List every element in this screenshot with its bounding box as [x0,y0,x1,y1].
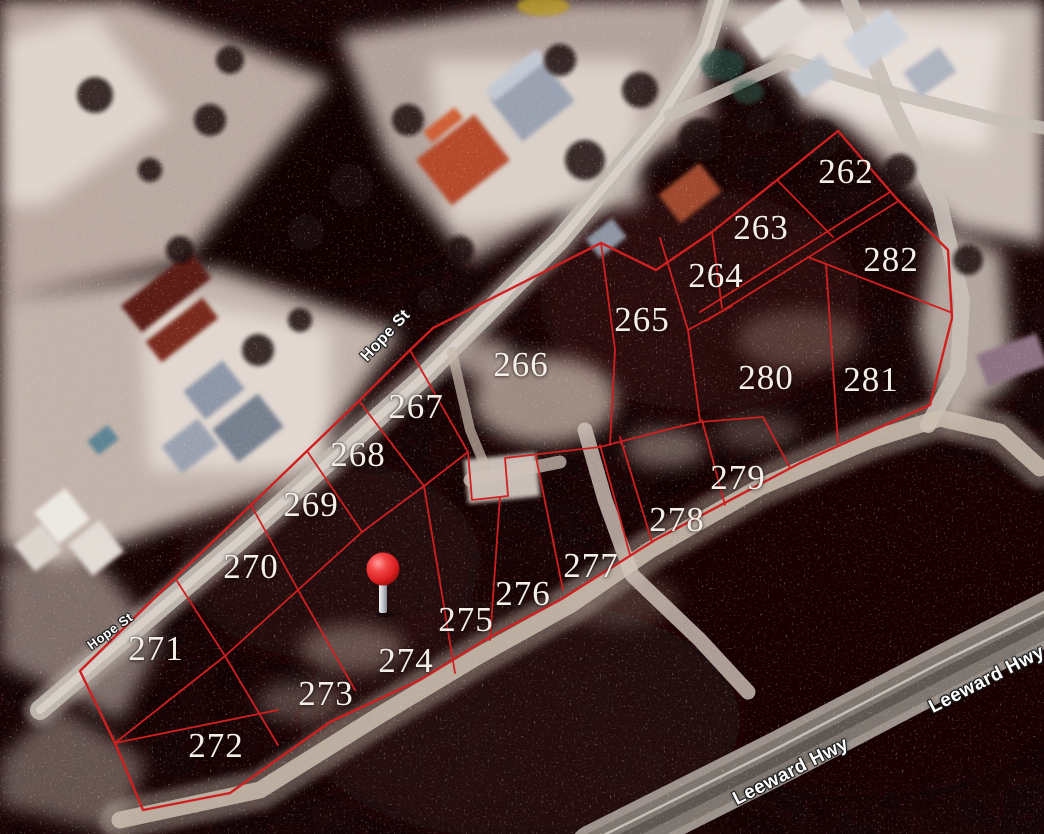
satellite-map[interactable]: 2622632822642652662802812672682692792782… [0,0,1044,834]
pin-head [367,553,400,586]
pin-stem [379,582,387,613]
satellite-imagery [0,0,1044,834]
